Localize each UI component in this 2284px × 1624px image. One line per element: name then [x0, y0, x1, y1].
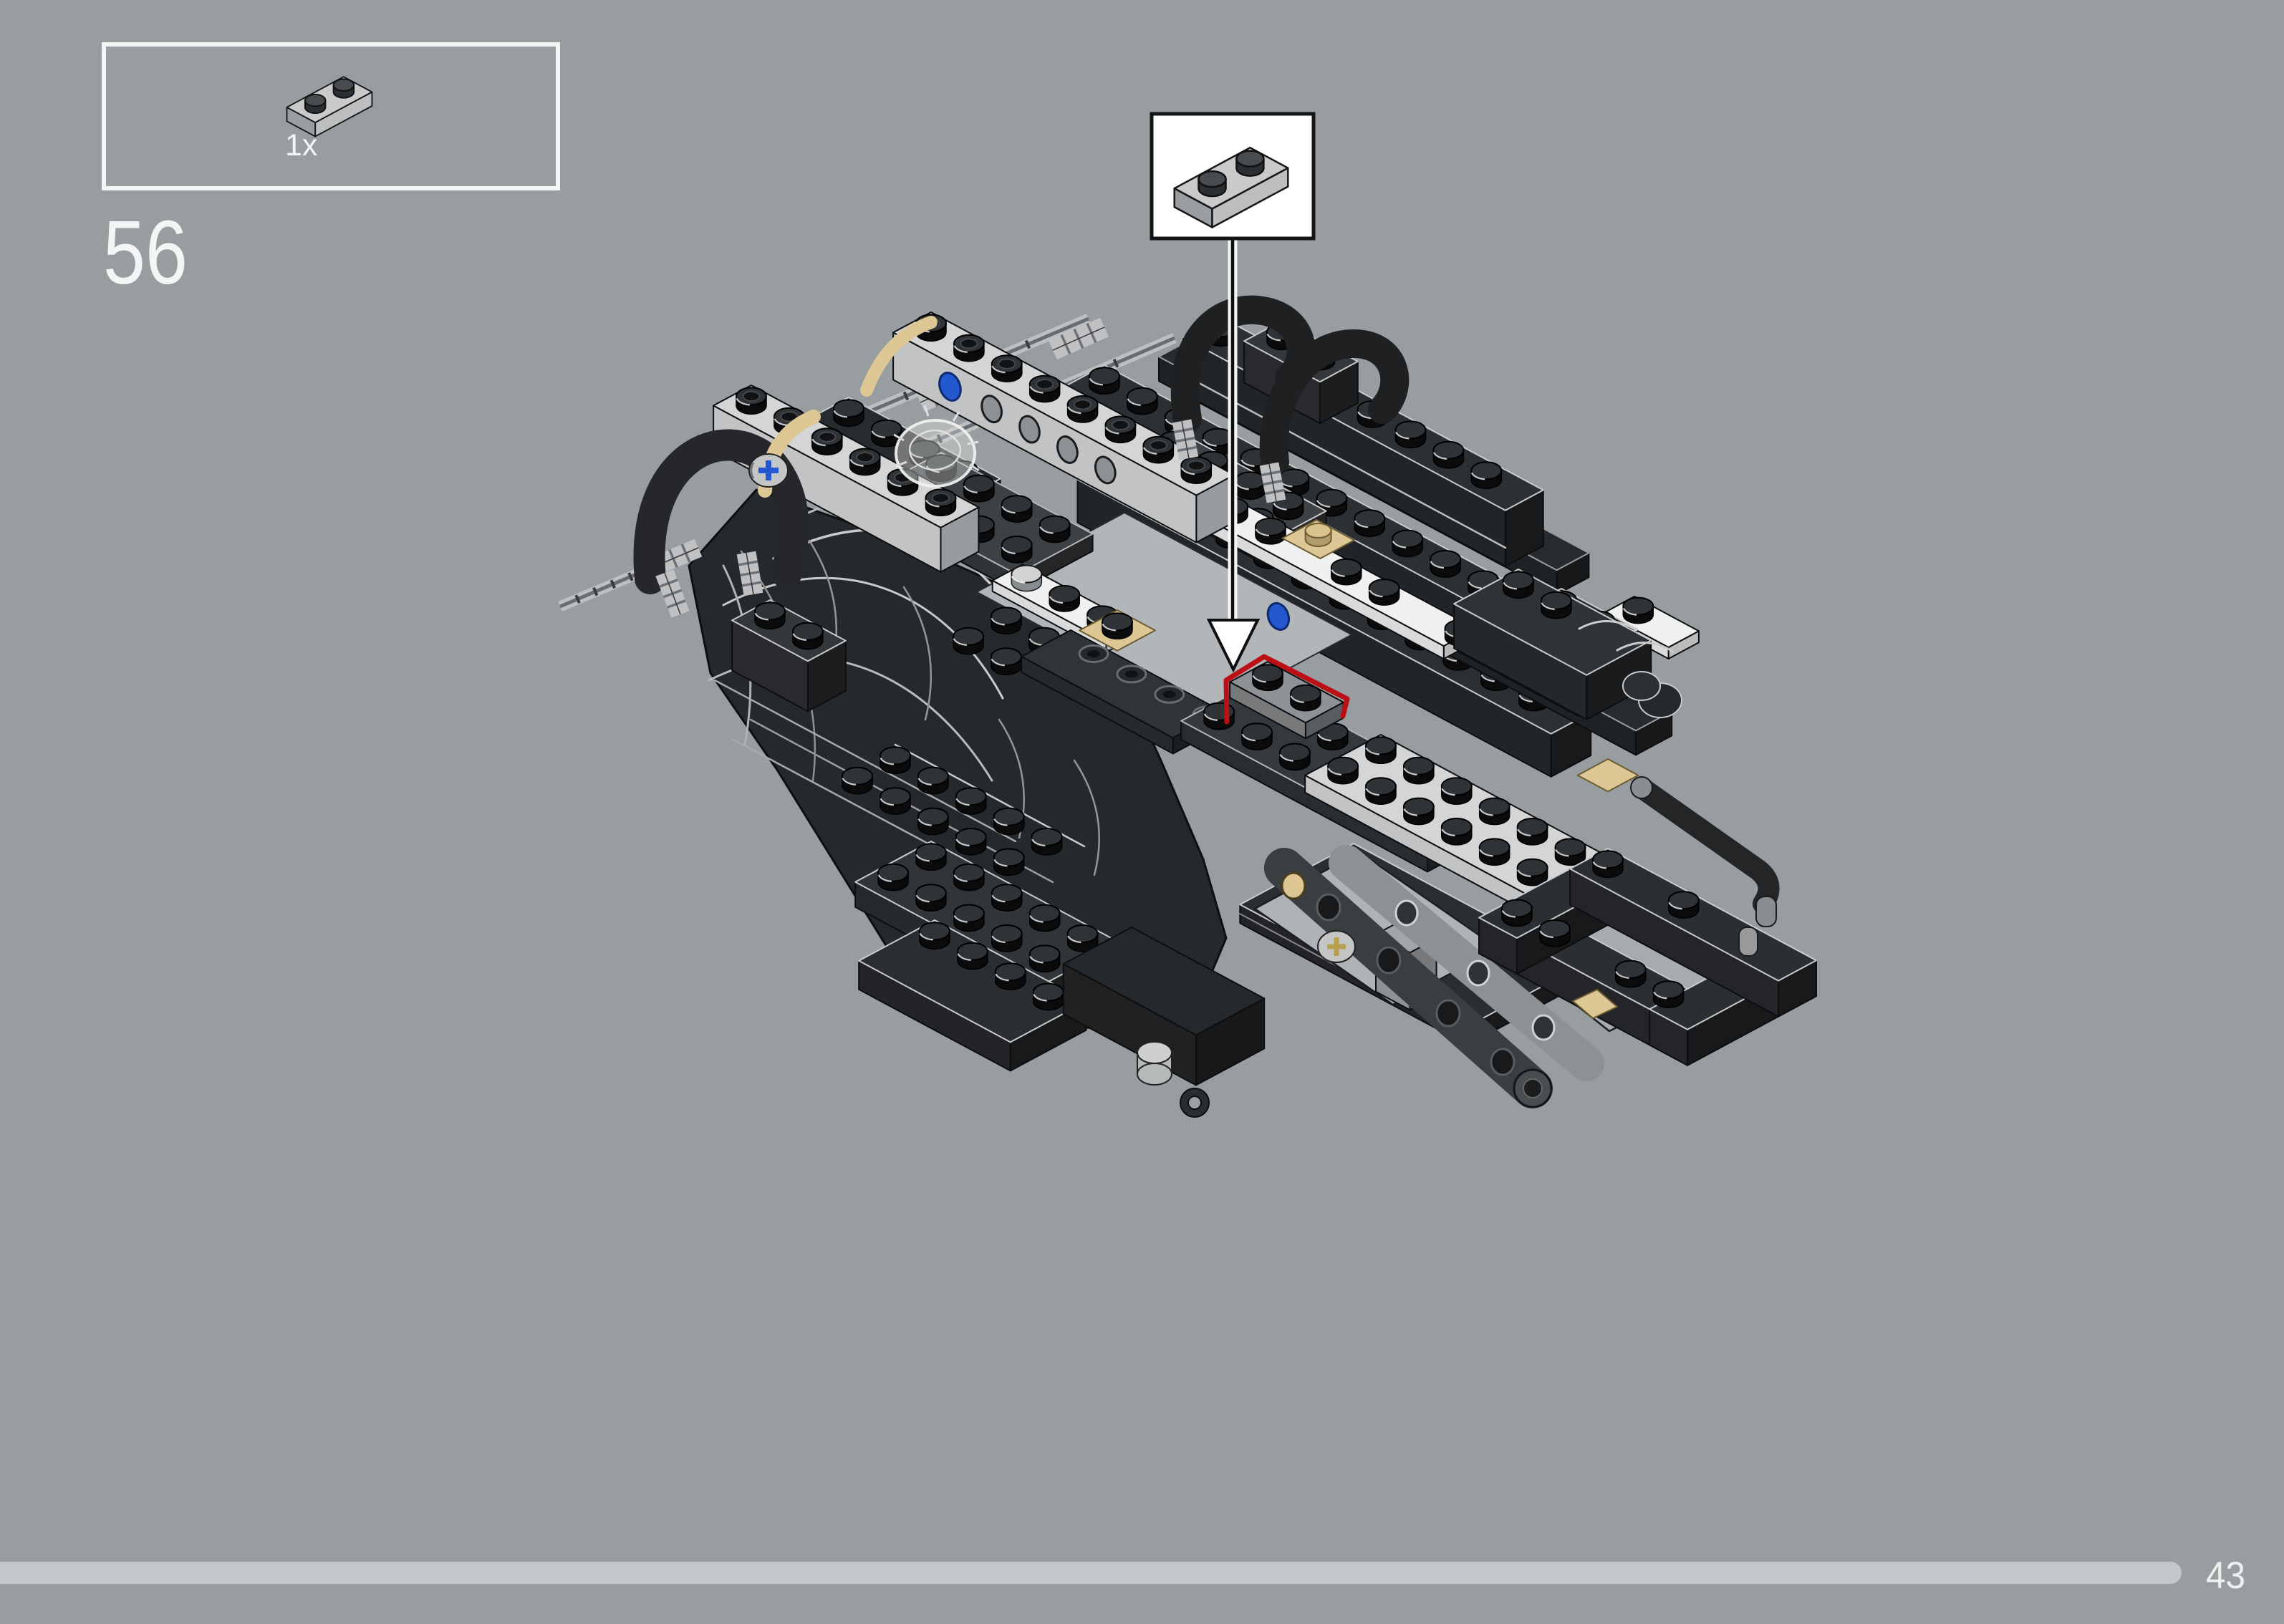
svg-text:43: 43: [2206, 1555, 2245, 1597]
svg-text:1x: 1x: [285, 128, 318, 163]
svg-text:56: 56: [103, 202, 188, 303]
